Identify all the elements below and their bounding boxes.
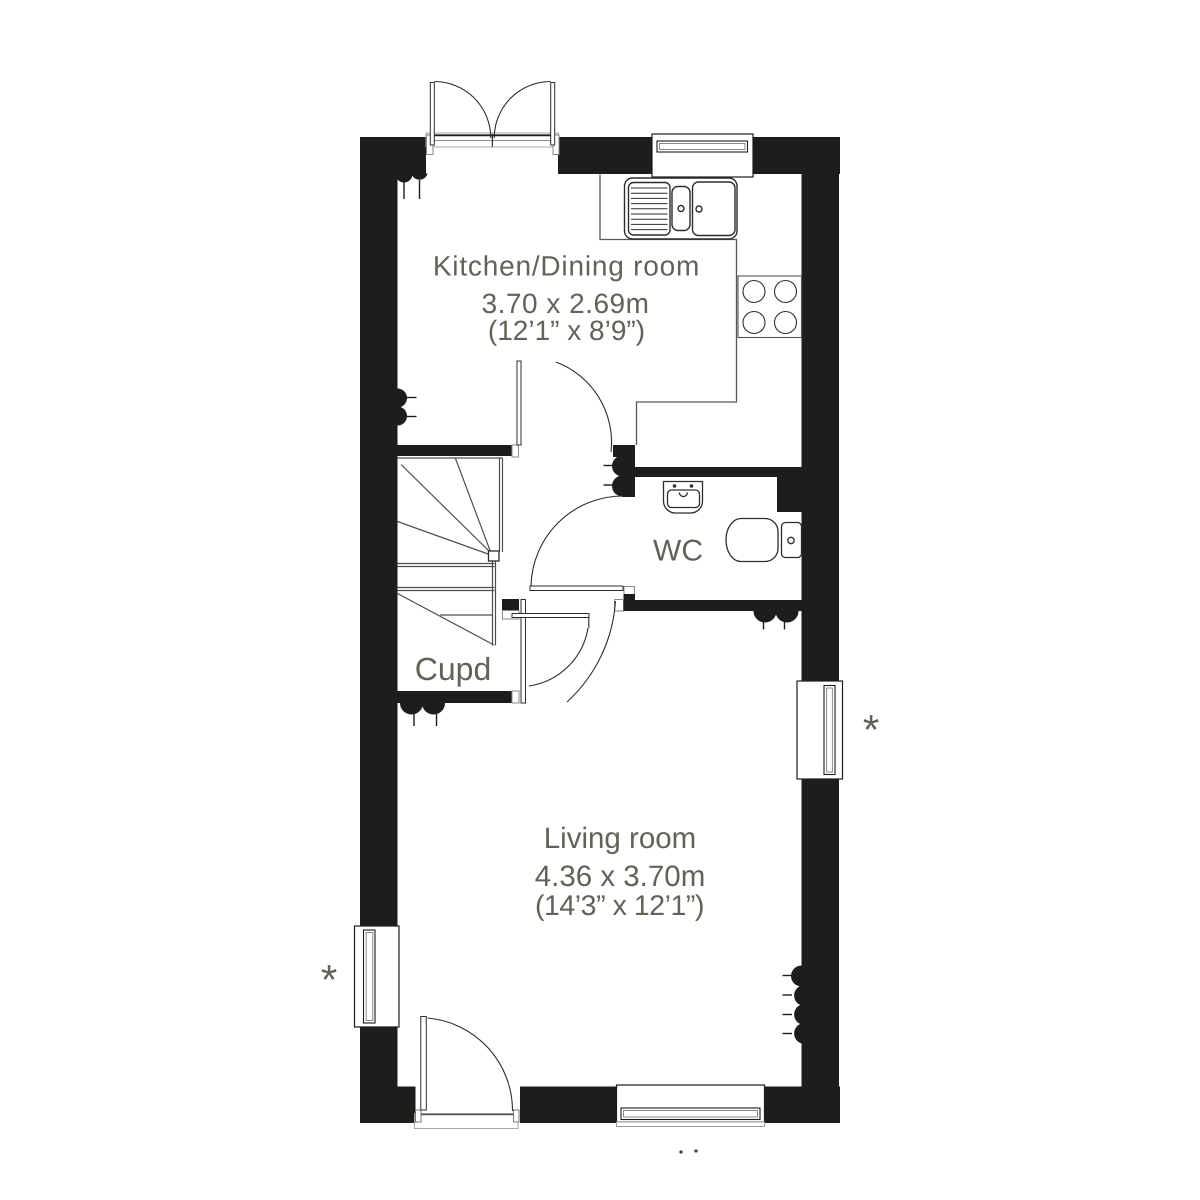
svg-text:(12’1” x 8’9”): (12’1” x 8’9”)	[488, 315, 645, 346]
svg-text:WC: WC	[653, 535, 703, 568]
svg-text:*: *	[863, 706, 879, 753]
svg-text:4.36 x 3.70m: 4.36 x 3.70m	[535, 860, 706, 893]
svg-text:Cupd: Cupd	[415, 651, 492, 687]
svg-text:*: *	[321, 956, 337, 1003]
svg-text:(14’3” x 12’1”): (14’3” x 12’1”)	[535, 890, 704, 922]
svg-text:Kitchen/Dining room: Kitchen/Dining room	[433, 251, 700, 282]
svg-text:Living room: Living room	[544, 822, 696, 855]
